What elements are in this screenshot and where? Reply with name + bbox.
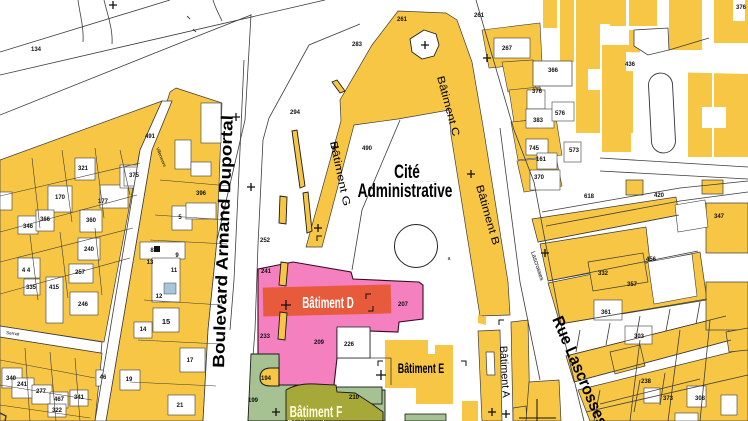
- svg-text:573: 573: [569, 148, 580, 154]
- svg-text:240: 240: [84, 247, 95, 253]
- svg-text:745: 745: [529, 146, 540, 152]
- svg-text:436: 436: [625, 62, 636, 68]
- svg-text:19: 19: [126, 377, 133, 383]
- svg-text:199: 199: [248, 398, 259, 404]
- svg-text:14: 14: [140, 327, 147, 333]
- svg-text:303: 303: [634, 334, 645, 340]
- svg-text:383: 383: [533, 118, 544, 124]
- svg-text:226: 226: [344, 342, 355, 348]
- svg-text:238: 238: [641, 379, 652, 385]
- svg-text:Bâtiment E: Bâtiment E: [398, 362, 445, 376]
- svg-text:Bâtiment D: Bâtiment D: [302, 294, 353, 312]
- svg-text:Administrative: Administrative: [358, 180, 453, 202]
- svg-text:375: 375: [129, 173, 140, 179]
- svg-text:357: 357: [627, 282, 638, 288]
- svg-text:341: 341: [74, 395, 85, 401]
- svg-text:252: 252: [260, 238, 271, 244]
- svg-text:241: 241: [17, 382, 28, 388]
- svg-text:373: 373: [663, 396, 674, 402]
- svg-text:4 4: 4 4: [22, 268, 31, 274]
- svg-text:366: 366: [548, 68, 559, 74]
- svg-text:490: 490: [362, 146, 373, 152]
- svg-text:194: 194: [261, 376, 272, 382]
- svg-text:396: 396: [196, 191, 207, 197]
- svg-text:15: 15: [162, 317, 170, 326]
- svg-text:267: 267: [502, 46, 513, 52]
- svg-text:321: 321: [78, 166, 89, 172]
- svg-text:456: 456: [646, 257, 657, 263]
- svg-text:467: 467: [54, 397, 65, 403]
- svg-text:618: 618: [584, 194, 595, 200]
- svg-text:346: 346: [23, 224, 34, 230]
- svg-text:241: 241: [261, 269, 272, 275]
- svg-text:576: 576: [555, 111, 566, 117]
- svg-text:12: 12: [156, 294, 163, 300]
- svg-text:161: 161: [536, 157, 547, 163]
- svg-text:177: 177: [98, 199, 109, 205]
- svg-text:246: 246: [78, 302, 89, 308]
- svg-text:376: 376: [736, 5, 747, 11]
- svg-text:322: 322: [52, 408, 63, 414]
- svg-text:491: 491: [145, 134, 156, 140]
- svg-text:21: 21: [177, 403, 184, 409]
- svg-text:11: 11: [171, 268, 178, 274]
- svg-text:13: 13: [147, 260, 154, 266]
- svg-text:308: 308: [695, 396, 706, 402]
- svg-text:376: 376: [532, 89, 543, 95]
- svg-text:261: 261: [474, 13, 485, 19]
- svg-text:347: 347: [714, 214, 725, 220]
- svg-text:170: 170: [55, 195, 66, 201]
- svg-text:134: 134: [31, 47, 42, 53]
- svg-text:207: 207: [398, 302, 409, 308]
- svg-text:257: 257: [75, 270, 86, 276]
- svg-text:261: 261: [397, 17, 408, 23]
- svg-text:415: 415: [49, 285, 60, 291]
- svg-text:335: 335: [26, 285, 37, 291]
- svg-text:209: 209: [314, 340, 325, 346]
- svg-text:233: 233: [260, 334, 271, 340]
- svg-text:210: 210: [349, 395, 360, 401]
- svg-text:294: 294: [290, 110, 301, 116]
- svg-text:361: 361: [601, 310, 612, 316]
- svg-text:332: 332: [598, 271, 609, 277]
- svg-text:370: 370: [534, 175, 545, 181]
- svg-text:420: 420: [654, 193, 665, 199]
- svg-text:a: a: [448, 256, 451, 262]
- svg-text:46: 46: [100, 375, 107, 381]
- svg-text:360: 360: [86, 218, 97, 224]
- svg-text:366: 366: [40, 217, 51, 223]
- svg-text:340: 340: [6, 376, 17, 382]
- svg-text:17: 17: [187, 358, 194, 364]
- svg-text:283: 283: [352, 42, 363, 48]
- svg-text:277: 277: [36, 389, 47, 395]
